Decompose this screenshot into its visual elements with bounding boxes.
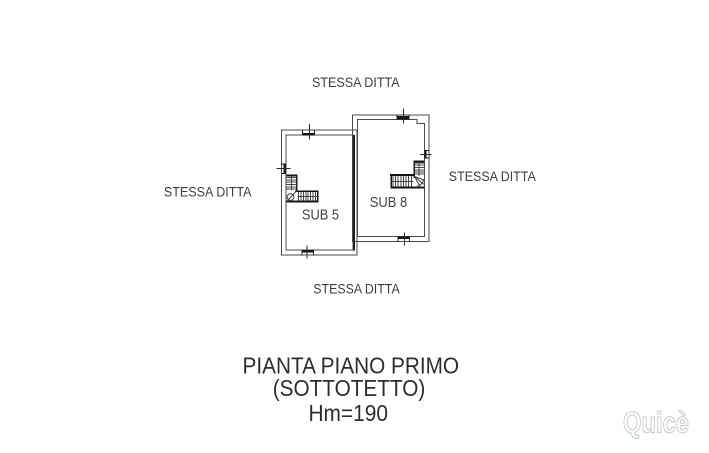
- svg-text:(SOTTOTETTO): (SOTTOTETTO): [273, 375, 426, 401]
- svg-text:STESSA DITTA: STESSA DITTA: [164, 184, 252, 200]
- svg-text:STESSA DITTA: STESSA DITTA: [313, 281, 400, 297]
- svg-text:SUB 5: SUB 5: [302, 207, 339, 223]
- svg-text:Hm=190: Hm=190: [308, 400, 388, 426]
- svg-text:SUB 8: SUB 8: [370, 195, 408, 211]
- svg-text:STESSA DITTA: STESSA DITTA: [449, 168, 537, 184]
- svg-text:STESSA DITTA: STESSA DITTA: [312, 74, 400, 90]
- svg-text:Quicè: Quicè: [623, 407, 689, 440]
